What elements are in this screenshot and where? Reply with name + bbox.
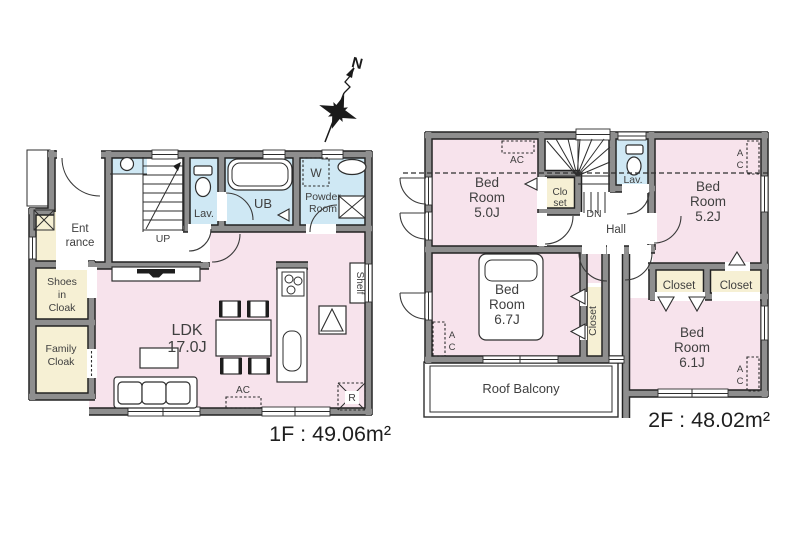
round-sink-icon xyxy=(121,158,134,171)
family-cloak-label-1: Family xyxy=(46,343,78,355)
washer-label: W xyxy=(310,166,322,180)
powder-room-label-2: Room xyxy=(309,203,337,215)
ac-label-67-a: A xyxy=(449,330,456,341)
shoes-cloak-label-1: Shoes xyxy=(47,276,77,288)
entrance-label-2: rance xyxy=(66,237,95,249)
ac-label-52-a: A xyxy=(737,148,744,159)
stairs-up-icon xyxy=(143,157,184,232)
compass-north-label: N xyxy=(350,54,365,73)
floor-plan-canvas: Ent rance Shoes in Cloak Family Cloak LD… xyxy=(0,0,800,548)
fridge-label: R xyxy=(348,392,356,404)
bedroom-50-label-1: Bed xyxy=(475,175,499,190)
closet-left-label: Closet xyxy=(663,280,696,292)
floor-plan-page: Ent rance Shoes in Cloak Family Cloak LD… xyxy=(0,0,800,548)
ac-label-61-a: A xyxy=(737,364,744,375)
bedroom-52-label-2: Room xyxy=(690,194,726,209)
up-label: UP xyxy=(156,233,171,245)
compass-icon: N xyxy=(313,54,364,142)
roof-balcony-label: Roof Balcony xyxy=(482,381,560,396)
oval-sink-icon xyxy=(338,160,366,175)
vanity-icon xyxy=(339,196,365,218)
bedroom-61-label-3: 6.1J xyxy=(679,355,705,370)
bedroom-67-label-2: Room xyxy=(489,297,525,312)
entrance-label-1: Ent xyxy=(71,223,89,235)
lav-label-2f: Lav. xyxy=(623,174,642,186)
bathtub-icon xyxy=(228,159,292,190)
sofa-icon xyxy=(114,377,197,408)
ac-label-61-c: C xyxy=(737,376,744,387)
bedroom-67-label-3: 6.7J xyxy=(494,312,520,327)
entrance-porch xyxy=(27,150,50,206)
closet-stairs-label-1: Clo xyxy=(552,187,567,198)
powder-room-label-1: Powder xyxy=(305,191,341,203)
ldk-label-2: 17.0J xyxy=(167,339,206,356)
lav-label-1f: Lav. xyxy=(194,208,214,220)
floor2-plan: Bed Room 5.0J Bed Room 5.2J Bed Room 6.7… xyxy=(400,129,770,432)
bedroom-52-label-1: Bed xyxy=(696,179,720,194)
closet-right-label: Closet xyxy=(720,280,753,292)
ac-label-67-c: C xyxy=(449,342,456,353)
closet-stairs-label-2: set xyxy=(553,198,567,209)
ac-label-1f: AC xyxy=(236,385,250,396)
floor2-area-label: 2F : 48.02m² xyxy=(648,408,770,432)
kitchen-island-icon xyxy=(276,266,308,383)
shoes-cloak-label-2: in xyxy=(58,289,66,301)
family-cloak-label-2: Cloak xyxy=(48,356,76,368)
hall-label: Hall xyxy=(606,224,626,236)
floor1-area-label: 1F : 49.06m² xyxy=(269,422,391,446)
shoes-cloak-label-3: Cloak xyxy=(49,302,77,314)
bedroom-52-label-3: 5.2J xyxy=(695,209,721,224)
ldk-label-1: LDK xyxy=(171,322,202,339)
bedroom-67-label-1: Bed xyxy=(495,282,519,297)
floor1-plan: Ent rance Shoes in Cloak Family Cloak LD… xyxy=(27,149,391,446)
bedroom-50-label-2: Room xyxy=(469,190,505,205)
toilet-icon-1f xyxy=(194,166,212,197)
ac-label-52-c: C xyxy=(737,160,744,171)
ub-label: UB xyxy=(254,196,272,211)
casement-window-arcs xyxy=(400,178,426,319)
ac-label-50: AC xyxy=(510,155,524,166)
closet-column-label: Closet xyxy=(587,306,599,336)
tv-board-icon xyxy=(112,267,200,281)
cupboard-icon xyxy=(319,306,346,334)
shelf-label: Shelf xyxy=(354,272,365,295)
dn-label: DN xyxy=(586,208,601,220)
bedroom-50-label-3: 5.0J xyxy=(474,205,500,220)
bedroom-61-label-1: Bed xyxy=(680,325,704,340)
bedroom-61-label-2: Room xyxy=(674,340,710,355)
